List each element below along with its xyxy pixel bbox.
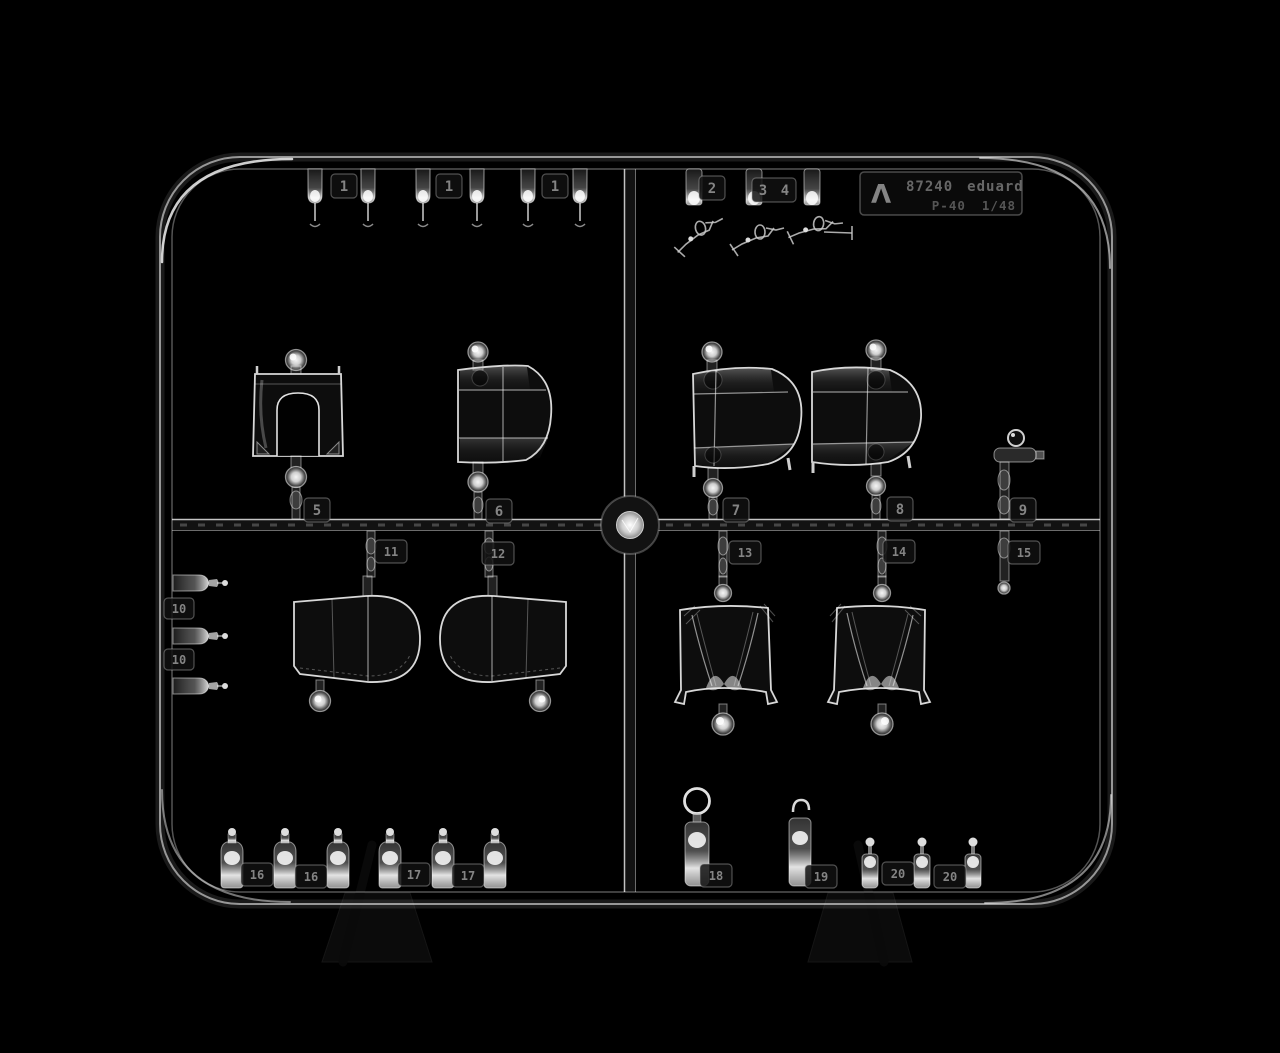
gate-chain-bulge [871,498,881,514]
gate-shadow [867,371,885,389]
part-tag: 10 [164,649,194,670]
tag-number: 20 [943,870,957,884]
tag-number: 1 [340,179,348,195]
part-tag: 6 [486,499,512,523]
sprue-gate [866,340,886,360]
tag-number: 14 [892,545,906,559]
gate-sparkle [870,344,877,351]
part-tag: 34 [752,178,796,202]
tag-number: 18 [709,869,723,883]
catalog-code: 87240 [906,179,953,195]
gate-sparkle [472,346,479,353]
part-tag: 13 [729,541,761,564]
part-tag: 9 [1010,498,1036,522]
label-plate: Λ 87240eduard P-401/48 [860,172,1024,215]
gate-shadow [705,447,721,463]
tag-number: 1 [551,179,559,195]
model-name: P-40 [932,198,966,213]
gate-sparkle [290,354,297,361]
tag-number: 17 [461,869,475,883]
part-19-shine [792,831,808,845]
sprue-photo-canvas: Λ 87240eduard P-401/48 [0,0,1280,1053]
ring-sparkle [1011,433,1015,437]
part-tag: 10 [164,598,194,619]
part-tag: 18 [700,864,732,887]
part-tag: 17 [398,863,430,886]
part-tag: 20 [934,865,966,888]
gate-stem [871,464,881,476]
part-tag: 14 [883,540,915,563]
tag-number: 16 [304,870,318,884]
gunsight-arm [824,232,852,233]
tag-number: 8 [896,502,904,518]
tag-number: 1 [445,179,453,195]
part-tag: 7 [723,498,749,522]
part-tag: 19 [805,865,837,888]
part-tag: 8 [887,497,913,521]
tag-number: 17 [407,868,421,882]
center-gate-hub [601,496,659,554]
gate-chain-bulge [708,499,718,515]
canopy-bottom-band [460,438,548,462]
sprue-gate [702,342,722,362]
tag-number: 2 [708,181,716,197]
sprue-gate [286,467,307,488]
canopy-foot [788,458,790,470]
gate-sparkle [706,346,713,353]
gate-chain-bulge [290,491,302,509]
tag-number: 9 [1019,503,1027,519]
hub-core [617,512,644,539]
part-tag: 16 [295,865,327,888]
sprue-gate [867,477,886,496]
tag-number: 11 [384,545,398,559]
part-9-nub [1036,451,1044,459]
tag-number: 13 [738,546,752,560]
gate-chain-bulge [473,497,483,513]
scale-text: 1/48 [982,198,1016,213]
sprue-letter-mark: Λ [871,180,891,210]
tag-number: 16 [250,868,264,882]
tag-number: 4 [781,183,789,199]
part-15-ball [998,582,1010,594]
part-tag: 2 [699,176,725,200]
gunsight-gate-stub [804,169,820,205]
gate-stem [291,366,301,374]
sprue-gate [468,472,488,492]
canopy-foot [908,456,910,468]
gate-shadow [472,370,488,386]
brand-name: eduard [967,179,1024,195]
tag-number: 12 [491,547,505,561]
sprue-gate [704,479,723,498]
part-tag: 16 [241,863,273,886]
part-tag: 1 [542,174,568,198]
part-tag: 17 [452,864,484,887]
windscreen-arch-frame [277,393,319,456]
part-tag: 15 [1008,541,1040,564]
sprue-gate [468,342,488,362]
part-18-shine [688,832,706,848]
tag-number: 10 [172,653,186,667]
part-tag: 5 [304,498,330,522]
gate-shadow [868,444,884,460]
canopy-top-band [460,366,530,390]
part-tag: 12 [482,542,514,565]
gate-shadow [704,371,722,389]
part-tag: 1 [331,174,357,198]
tag-number: 15 [1017,546,1031,560]
gate-chain-bulge [998,496,1010,514]
tag-number: 7 [732,503,740,519]
gate-chain-bulge [998,470,1010,490]
part-tag: 11 [375,540,407,563]
tag-number: 5 [313,503,321,519]
part-9-ring [1008,430,1024,446]
tag-number: 10 [172,602,186,616]
part-tag: 1 [436,174,462,198]
sprue-photo: Λ 87240eduard P-401/48 [0,0,1280,1053]
tag-number: 19 [814,870,828,884]
tag-number: 3 [759,183,767,199]
part-tag: 20 [882,862,914,885]
tag-number: 20 [891,867,905,881]
part-9-body [994,448,1036,462]
tag-number: 6 [495,504,503,520]
